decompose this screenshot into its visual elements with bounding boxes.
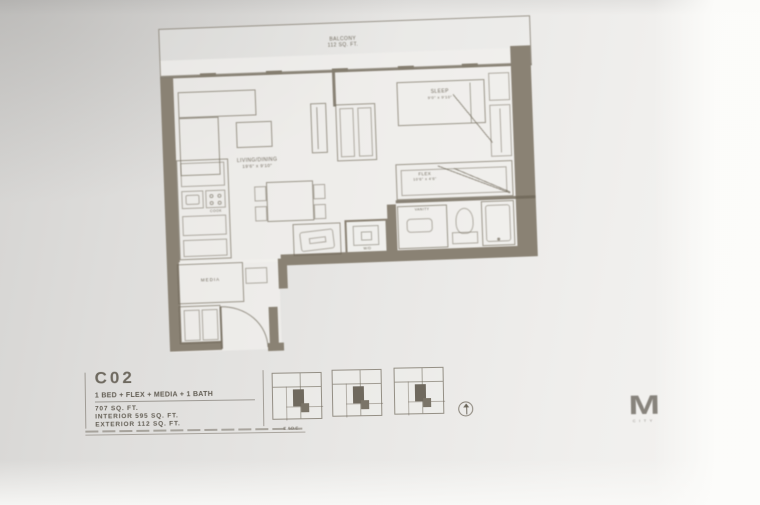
keyplan-line (333, 383, 381, 385)
window-mullion (462, 63, 478, 68)
toilet-bowl (455, 208, 474, 235)
dining-table (266, 180, 314, 222)
keyplan-line (395, 381, 443, 383)
shower (481, 200, 516, 246)
burner (209, 194, 213, 198)
title-block-right-rule (263, 370, 265, 426)
washer-dryer: W/D (344, 219, 388, 255)
unit-code: C02 (94, 368, 134, 389)
wardrobe (489, 104, 512, 157)
media-desk-keyboard (309, 236, 327, 244)
oven (182, 215, 227, 237)
kitchen-sink (181, 190, 204, 209)
keyplan-core (361, 400, 369, 409)
media-desk (299, 228, 335, 252)
keyplan-core (423, 398, 431, 407)
sofa (178, 89, 257, 118)
wardrobe (488, 72, 510, 101)
unit-type: 1 BED + FLEX + MEDIA + 1 BATH (95, 390, 255, 402)
window-mullion (398, 66, 414, 71)
keyplan-thumbnail (394, 367, 445, 415)
floor-plan: BALCONY 112 SQ. FT. LIVING/DINING 19'6" … (152, 0, 549, 365)
tv-unit-line (316, 107, 319, 149)
burner (218, 201, 222, 205)
foyer-closet (178, 305, 221, 345)
closet-door-panel (202, 309, 219, 341)
washer-door (361, 231, 372, 240)
interior-area: INTERIOR 595 SQ. FT. (95, 412, 179, 420)
media-bench (245, 267, 268, 284)
keyplan-strip (267, 364, 483, 428)
brand-logo: M CITY (612, 391, 677, 423)
keyplan-line (346, 383, 348, 417)
keyplan-thumbnail (332, 369, 383, 417)
window-mullion (266, 70, 282, 75)
dining-chair (255, 206, 268, 221)
burner (217, 194, 221, 198)
media-desk-nook (293, 222, 342, 256)
kitchen-base-cabinet (183, 239, 228, 258)
tv-unit (310, 103, 328, 154)
shower-drain (497, 238, 500, 241)
keyplan-thumbnail (272, 372, 323, 420)
keyplan-core (301, 403, 309, 412)
shower-pan (485, 204, 511, 242)
sliding-panel (339, 108, 355, 157)
wd-label: W/D (353, 246, 381, 251)
wall-bath-left (387, 204, 398, 251)
logo-m-mark: M (628, 392, 660, 419)
sleep-label: SLEEP 9'0" x 9'10" (410, 88, 470, 101)
total-area: 707 SQ. FT. (95, 405, 139, 413)
burner (210, 201, 214, 205)
dining-chair (313, 184, 326, 199)
dining-chair (254, 186, 267, 201)
flex-fold-line (454, 166, 511, 194)
wall-foyer-right (269, 307, 279, 347)
bed-fold-line (453, 93, 493, 144)
coffee-table (236, 121, 273, 148)
dining-chair (314, 204, 327, 219)
cooktop (205, 190, 226, 209)
sliding-panel (357, 107, 373, 156)
fridge (180, 162, 225, 188)
north-arrow-icon (458, 401, 473, 416)
wall-corridor (278, 258, 288, 288)
north-arrowhead (463, 403, 469, 407)
entry-door-swing (220, 305, 268, 349)
keyplan-line (273, 386, 321, 388)
washer-dryer-unit (353, 225, 380, 246)
cook-label: COOK (203, 208, 229, 213)
title-block-left-rule (85, 373, 87, 429)
vanity-sink (406, 218, 432, 233)
closet-door-panel (184, 310, 201, 342)
keyplan-line (286, 387, 288, 421)
window-mullion (200, 73, 216, 78)
sliding-door-partition (335, 103, 377, 161)
sink-basin (185, 195, 199, 206)
wardrobe-line (499, 108, 502, 152)
keyplan-line (408, 381, 410, 415)
flex-label: FLEX 10'6" x 4'6" (402, 170, 448, 182)
exterior-area: EXTERIOR 112 SQ. FT. (95, 420, 180, 428)
